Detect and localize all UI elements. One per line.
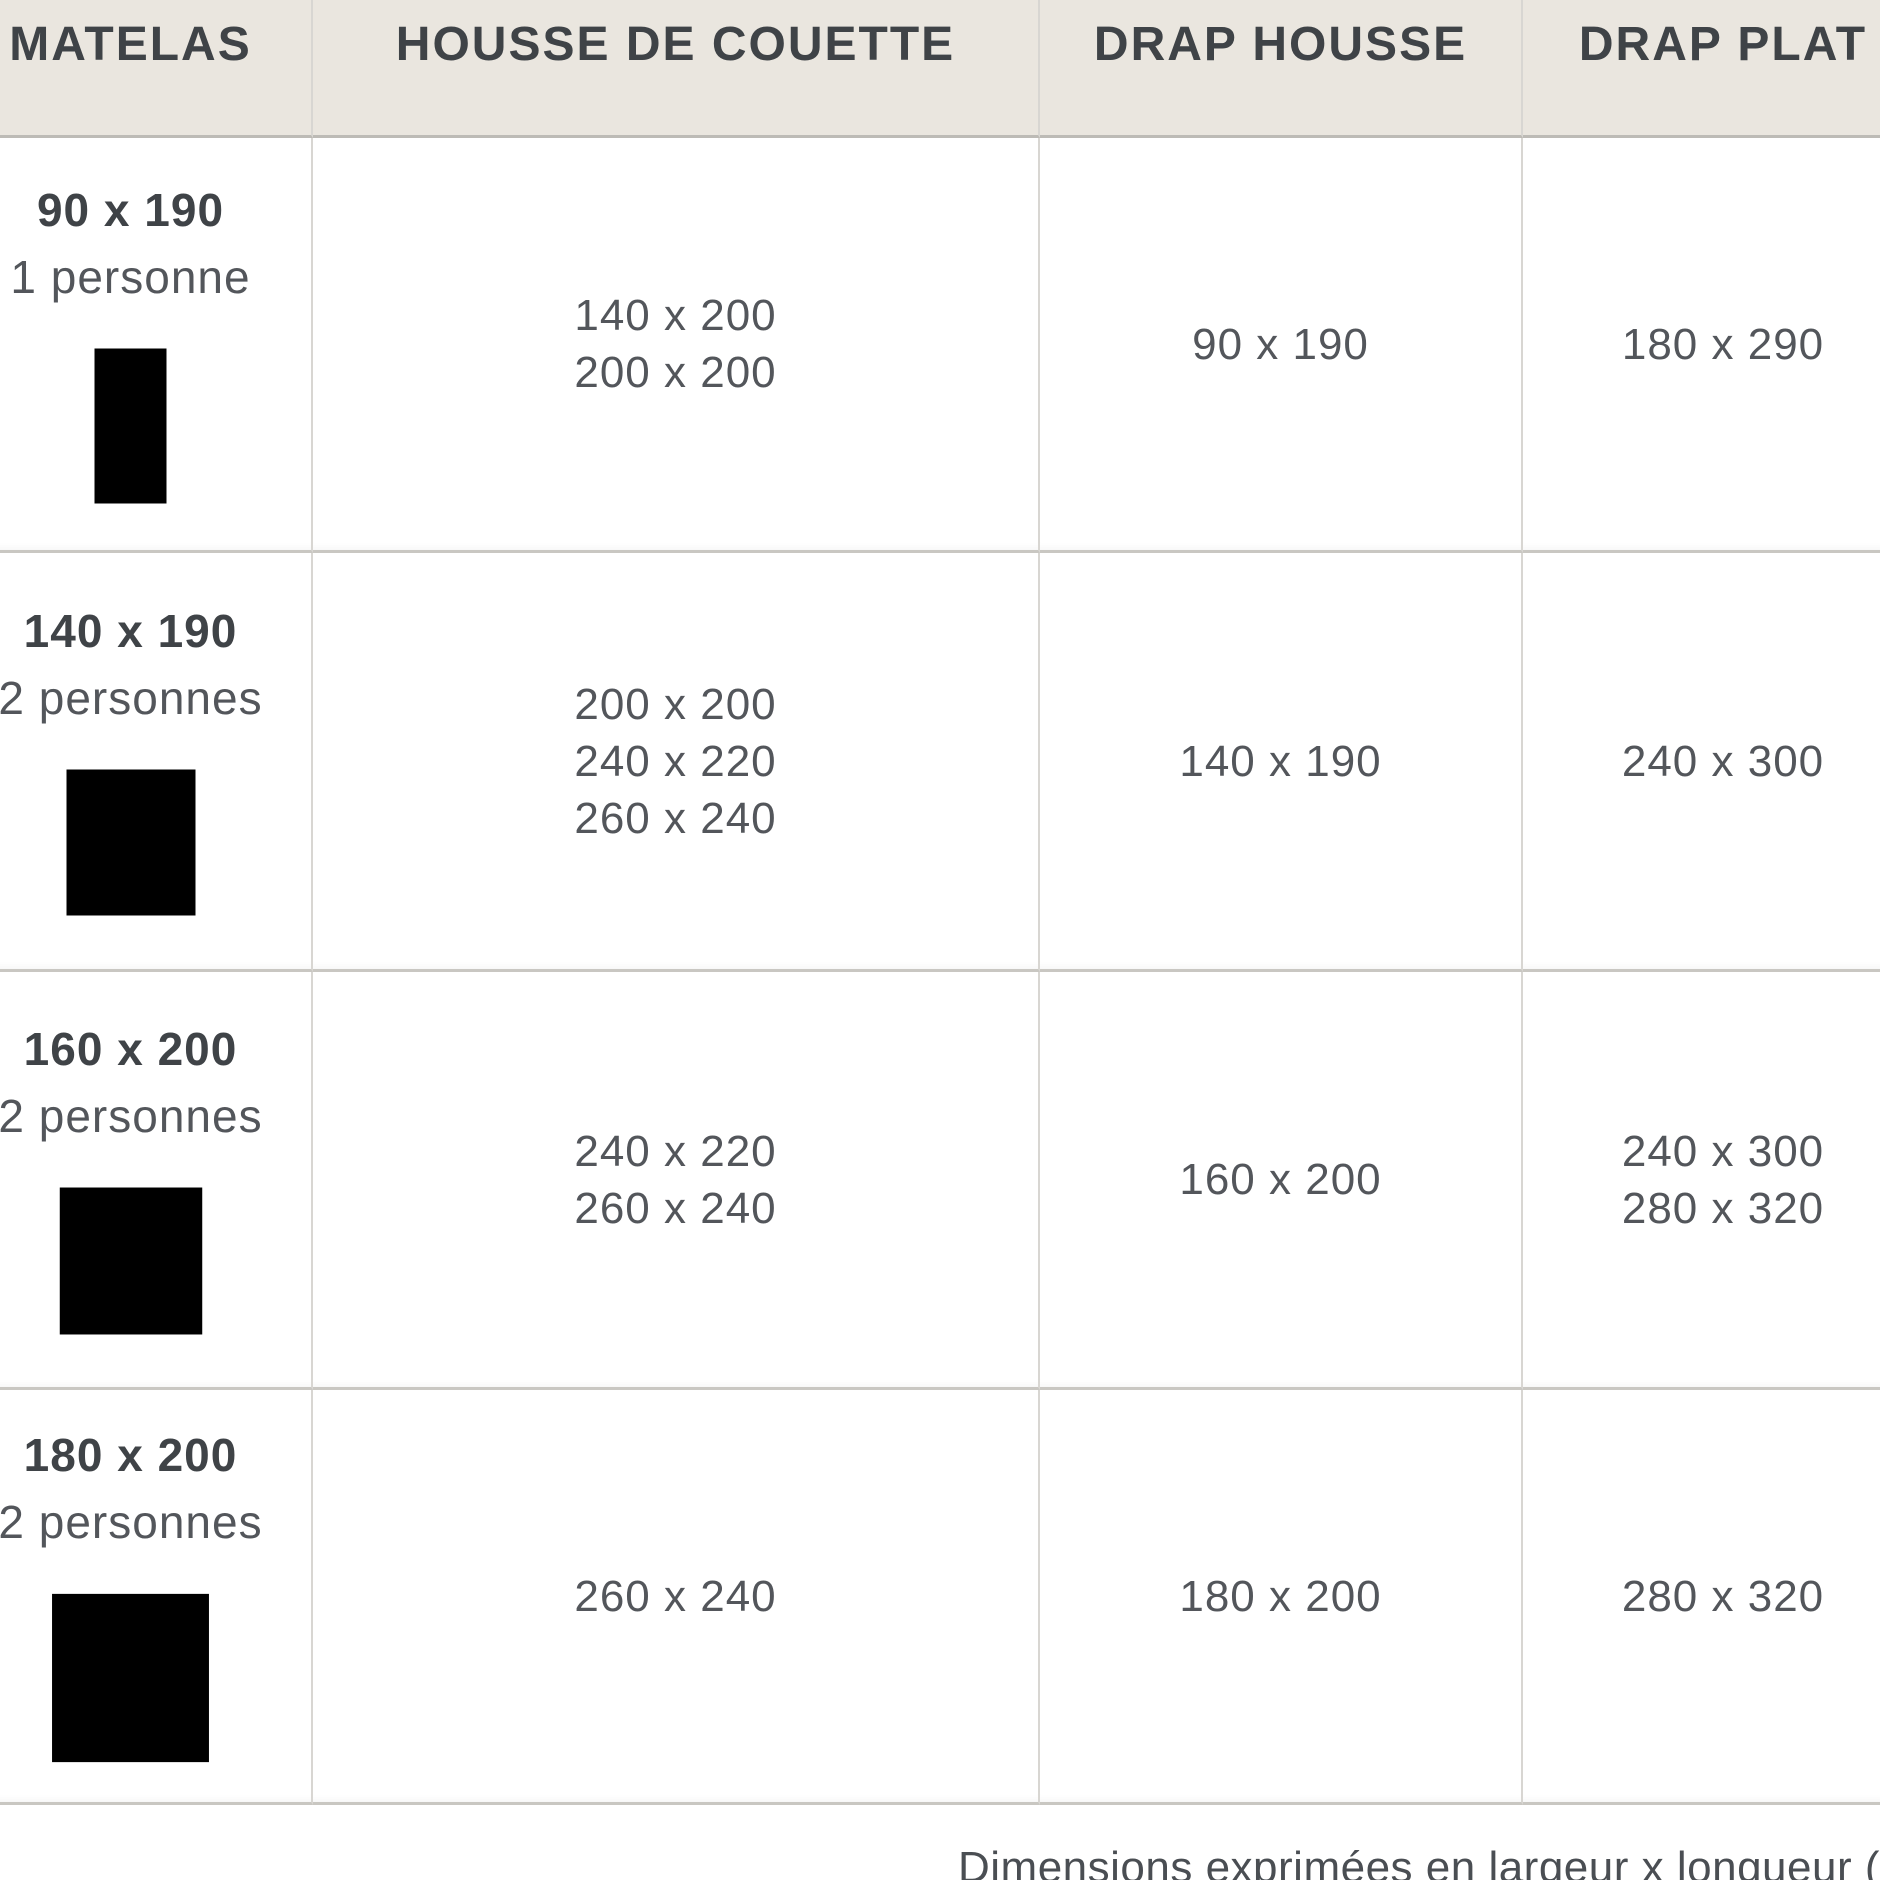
fitted-sheet-cell: 180 x 200 <box>1040 1390 1523 1805</box>
table-row-mattress-cell: 140 x 190 2 personnes <box>0 553 313 972</box>
fitted-sheet-size: 160 x 200 <box>1179 1151 1381 1208</box>
column-header-drap-housse: DRAP HOUSSE <box>1040 0 1523 138</box>
mattress-size: 140 x 190 <box>24 604 238 658</box>
mattress-size: 90 x 190 <box>37 183 224 237</box>
duvet-cover-cell: 240 x 220260 x 240 <box>313 972 1040 1390</box>
mattress-capacity: 2 personnes <box>0 671 263 725</box>
mattress-size: 180 x 200 <box>24 1428 238 1482</box>
mattress-capacity: 1 personne <box>10 250 250 304</box>
single-bed-icon <box>92 346 169 506</box>
duvet-cover-cell: 200 x 200240 x 220260 x 240 <box>313 553 1040 972</box>
double-bed-icon <box>57 1185 205 1337</box>
table-row-mattress-cell: 160 x 200 2 personnes <box>0 972 313 1390</box>
mattress-size: 160 x 200 <box>24 1022 238 1076</box>
flat-sheet-size: 280 x 320 <box>1622 1180 1824 1237</box>
duvet-cover-size: 240 x 220 <box>574 1123 776 1180</box>
flat-sheet-size: 280 x 320 <box>1622 1568 1824 1625</box>
duvet-cover-cell: 140 x 200200 x 200 <box>313 138 1040 553</box>
flat-sheet-size: 180 x 290 <box>1622 316 1824 373</box>
mattress-capacity: 2 personnes <box>0 1495 263 1549</box>
mattress-capacity: 2 personnes <box>0 1089 263 1143</box>
fitted-sheet-cell: 140 x 190 <box>1040 553 1523 972</box>
dimensions-note: Dimensions exprimées en largeur x longue… <box>958 1843 1880 1880</box>
flat-sheet-cell: 240 x 300280 x 320 <box>1523 972 1880 1390</box>
column-header-matelas: MATELAS <box>0 0 313 138</box>
duvet-cover-size: 260 x 240 <box>574 1568 776 1625</box>
flat-sheet-size: 240 x 300 <box>1622 733 1824 790</box>
duvet-cover-size: 260 x 240 <box>574 1180 776 1237</box>
flat-sheet-cell: 180 x 290 <box>1523 138 1880 553</box>
fitted-sheet-size: 180 x 200 <box>1179 1568 1381 1625</box>
flat-sheet-cell: 280 x 320 <box>1523 1390 1880 1805</box>
flat-sheet-cell: 240 x 300 <box>1523 553 1880 972</box>
duvet-cover-cell: 260 x 240 <box>313 1390 1040 1805</box>
fitted-sheet-size: 90 x 190 <box>1192 316 1369 373</box>
fitted-sheet-size: 140 x 190 <box>1179 733 1381 790</box>
duvet-cover-size: 260 x 240 <box>574 790 776 847</box>
column-header-housse-de-couette: HOUSSE DE COUETTE <box>313 0 1040 138</box>
duvet-cover-size: 200 x 200 <box>574 344 776 401</box>
bedding-size-table: MATELAS HOUSSE DE COUETTE DRAP HOUSSE DR… <box>0 0 1880 1805</box>
bedding-size-guide: MATELAS HOUSSE DE COUETTE DRAP HOUSSE DR… <box>0 0 1880 1880</box>
table-row-mattress-cell: 90 x 190 1 personne <box>0 138 313 553</box>
duvet-cover-size: 200 x 200 <box>574 676 776 733</box>
duvet-cover-size: 240 x 220 <box>574 733 776 790</box>
flat-sheet-size: 240 x 300 <box>1622 1123 1824 1180</box>
table-row-mattress-cell: 180 x 200 2 personnes <box>0 1390 313 1805</box>
column-header-drap-plat: DRAP PLAT <box>1523 0 1880 138</box>
fitted-sheet-cell: 90 x 190 <box>1040 138 1523 553</box>
double-bed-icon <box>49 1591 212 1765</box>
double-bed-icon <box>64 767 198 918</box>
duvet-cover-size: 140 x 200 <box>574 287 776 344</box>
fitted-sheet-cell: 160 x 200 <box>1040 972 1523 1390</box>
